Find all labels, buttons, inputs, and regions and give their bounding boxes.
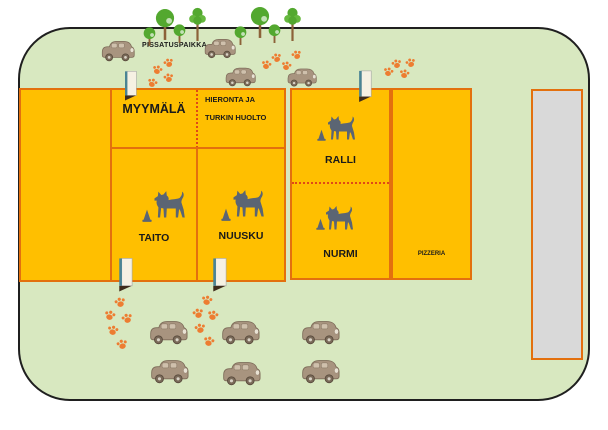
zone-label-taito: TAITO (112, 233, 196, 245)
open-door-icon (123, 69, 138, 102)
zone-label-pizzeria: PIZZERIA (391, 251, 472, 258)
dog-icon (324, 112, 357, 143)
building-gray-annex (531, 89, 583, 360)
paw-print-icon (162, 71, 175, 84)
zone-label-nurmi: NURMI (292, 249, 389, 261)
paw-print-icon (106, 323, 120, 337)
tree-icon (189, 7, 206, 41)
open-door-icon (357, 69, 373, 103)
divider-field-myymala (110, 88, 112, 282)
zone-label-hieronta-line1: HIERONTA JA (205, 95, 255, 104)
car-icon (220, 319, 260, 345)
divider-myymala-hieronta (196, 90, 198, 148)
car-icon (299, 358, 341, 384)
tree-icon (172, 24, 187, 43)
dog-icon (322, 202, 355, 233)
dog-icon (229, 181, 266, 225)
tree-icon (284, 7, 301, 41)
zone-label-ralli: RALLI (292, 155, 389, 167)
car-icon (224, 65, 256, 88)
zone-label-hieronta-line2: TURKIN HUOLTO (205, 113, 266, 122)
open-door-icon (211, 257, 228, 292)
divider-toprow-bottomrow (111, 147, 286, 149)
dog-park-site-map: MYYMÄLÄ HIERONTA JA TURKIN HUOLTO RALLI … (0, 0, 608, 430)
car-icon (203, 37, 236, 59)
divider-taito-nuusku (196, 148, 198, 282)
car-icon (299, 319, 341, 345)
divider-ralli-nurmi (292, 182, 389, 184)
zone-label-myymala: MYYMÄLÄ (112, 103, 196, 117)
car-icon (148, 358, 190, 384)
car-icon (147, 319, 189, 345)
paw-print-icon (398, 67, 411, 80)
tree-icon (267, 24, 282, 43)
open-door-icon (117, 257, 134, 292)
car-icon (221, 360, 261, 386)
zone-label-nuusku: NUUSKU (197, 231, 285, 243)
car-icon (100, 39, 135, 62)
dog-icon (150, 182, 187, 226)
